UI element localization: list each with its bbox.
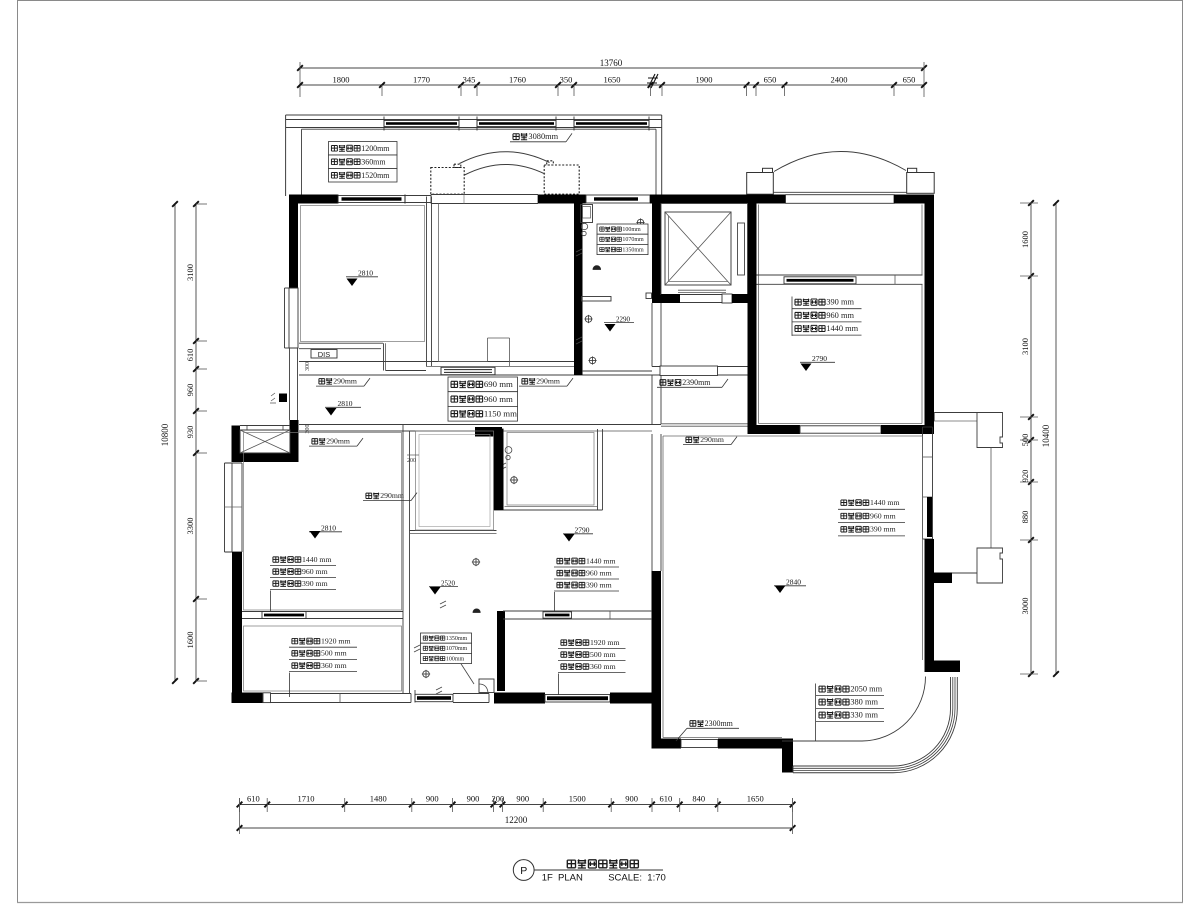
svg-text:1520mm: 1520mm	[361, 171, 390, 180]
svg-text:1440 mm: 1440 mm	[870, 498, 900, 507]
svg-text:300: 300	[305, 362, 311, 371]
svg-text:650: 650	[764, 75, 777, 85]
svg-text:1650: 1650	[747, 794, 764, 804]
svg-text:1070mm: 1070mm	[446, 646, 468, 652]
svg-text:360 mm: 360 mm	[321, 661, 347, 670]
svg-text:390 mm: 390 mm	[586, 580, 612, 589]
svg-text:380 mm: 380 mm	[850, 698, 878, 707]
svg-text:1F PLAN: 1F PLAN	[542, 873, 583, 884]
svg-text:1710: 1710	[298, 794, 315, 804]
svg-text:DIS: DIS	[318, 350, 331, 359]
svg-text:650: 650	[903, 75, 916, 85]
svg-text:1350mm: 1350mm	[622, 247, 644, 253]
svg-text:300: 300	[305, 425, 311, 434]
svg-text:1150 mm: 1150 mm	[484, 409, 517, 419]
svg-text:2050 mm: 2050 mm	[850, 685, 882, 694]
svg-text:2810: 2810	[321, 524, 336, 533]
svg-text:900: 900	[467, 794, 480, 804]
svg-text:1440 mm: 1440 mm	[826, 324, 858, 333]
svg-text:100mm: 100mm	[446, 656, 465, 662]
svg-text:960 mm: 960 mm	[826, 311, 854, 320]
svg-text:2790: 2790	[575, 526, 590, 535]
svg-text:2790: 2790	[812, 354, 827, 363]
svg-text:3100: 3100	[185, 264, 195, 281]
svg-text:1350mm: 1350mm	[446, 636, 468, 642]
svg-text:1200mm: 1200mm	[361, 144, 390, 153]
svg-text:200: 200	[407, 458, 416, 464]
svg-text:390 mm: 390 mm	[826, 298, 854, 307]
svg-text:360mm: 360mm	[361, 157, 386, 166]
svg-text:10400: 10400	[1041, 424, 1051, 447]
svg-text:610: 610	[185, 349, 195, 362]
svg-text:290mm: 290mm	[700, 435, 724, 444]
svg-text:390 mm: 390 mm	[870, 525, 896, 534]
svg-text:1800: 1800	[333, 75, 350, 85]
svg-text:13760: 13760	[600, 58, 623, 68]
svg-text:900: 900	[516, 794, 529, 804]
svg-text:200: 200	[492, 794, 505, 804]
svg-text:3300: 3300	[185, 518, 195, 535]
svg-text:P: P	[520, 865, 527, 877]
svg-text:350: 350	[560, 75, 573, 85]
svg-text:345: 345	[463, 75, 476, 85]
svg-text:390 mm: 390 mm	[302, 579, 328, 588]
svg-text:1440 mm: 1440 mm	[586, 556, 616, 565]
svg-text:500: 500	[1020, 434, 1030, 447]
svg-text:2810: 2810	[358, 269, 373, 278]
svg-text:12200: 12200	[505, 815, 528, 825]
svg-text:690 mm: 690 mm	[484, 379, 513, 389]
svg-text:2840: 2840	[786, 578, 801, 587]
svg-text:2810: 2810	[338, 399, 353, 408]
svg-text:2300mm: 2300mm	[705, 719, 734, 728]
svg-text:3080mm: 3080mm	[528, 132, 558, 141]
svg-text:930: 930	[185, 426, 195, 439]
svg-text:840: 840	[692, 794, 705, 804]
svg-text:290mm: 290mm	[333, 377, 357, 386]
svg-text:290mm: 290mm	[380, 491, 404, 500]
svg-text:1900: 1900	[696, 75, 713, 85]
svg-text:960 mm: 960 mm	[302, 567, 328, 576]
svg-text:290mm: 290mm	[326, 437, 350, 446]
svg-text:1600: 1600	[185, 632, 195, 649]
svg-text:2400: 2400	[831, 75, 848, 85]
svg-text:1920 mm: 1920 mm	[321, 637, 351, 646]
svg-text:1600: 1600	[1020, 231, 1030, 248]
svg-text:610: 610	[247, 794, 260, 804]
svg-text:2390mm: 2390mm	[682, 378, 711, 387]
svg-text:880: 880	[1020, 511, 1030, 524]
svg-text:960: 960	[185, 384, 195, 397]
svg-text:1920 mm: 1920 mm	[590, 638, 620, 647]
svg-text:960 mm: 960 mm	[870, 511, 896, 520]
svg-text:SCALE: 1:70: SCALE: 1:70	[608, 873, 666, 884]
svg-text:290mm: 290mm	[536, 377, 560, 386]
svg-text:500 mm: 500 mm	[321, 649, 347, 658]
svg-text:960 mm: 960 mm	[484, 394, 513, 404]
svg-text:1500: 1500	[569, 794, 586, 804]
svg-text:100mm: 100mm	[622, 227, 641, 233]
svg-text:1650: 1650	[604, 75, 621, 85]
svg-text:360 mm: 360 mm	[590, 662, 616, 671]
svg-text:3100: 3100	[1020, 338, 1030, 355]
svg-text:1770: 1770	[413, 75, 430, 85]
svg-text:3000: 3000	[1020, 598, 1030, 615]
svg-text:1440 mm: 1440 mm	[302, 555, 332, 564]
svg-text:1070mm: 1070mm	[622, 237, 644, 243]
svg-text:610: 610	[660, 794, 673, 804]
svg-text:1480: 1480	[370, 794, 387, 804]
svg-text:960 mm: 960 mm	[586, 568, 612, 577]
svg-text:920: 920	[1020, 470, 1030, 483]
svg-text:1760: 1760	[509, 75, 526, 85]
svg-text:900: 900	[426, 794, 439, 804]
svg-text:500 mm: 500 mm	[590, 650, 616, 659]
svg-text:900: 900	[625, 794, 638, 804]
svg-text:330 mm: 330 mm	[850, 711, 878, 720]
svg-text:10800: 10800	[160, 423, 170, 446]
